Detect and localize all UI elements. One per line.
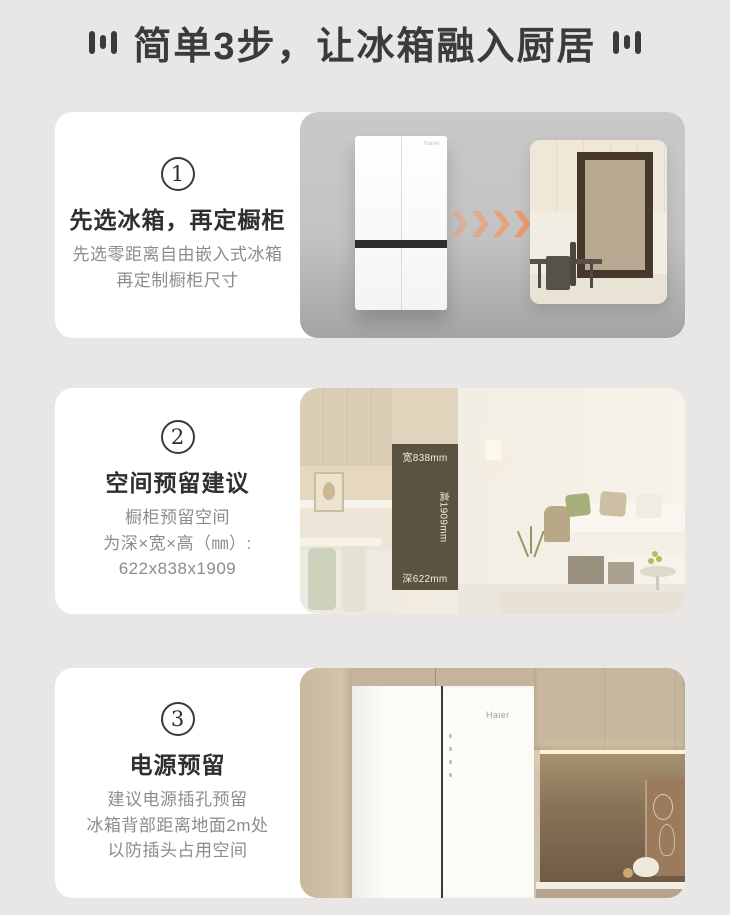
step2-title: 空间预留建议 [106,464,250,498]
arrow-chevron-icon [472,211,489,237]
fridge-door-seam [401,136,402,310]
page-title: 简单3步，让冰箱融入厨居 [133,15,596,70]
table-leg [538,264,541,288]
arrow-chevron-icon [451,211,468,237]
cabinet-above-niche [392,388,458,446]
step2-number-badge: 2 [161,420,195,454]
pillow-white [636,494,662,518]
kitchen-upper-cabinets [300,388,395,466]
header-ticks-right-icon [613,31,641,54]
step3-desc-line: 冰箱背部距离地面2m处 [86,813,268,839]
coffee-table-small [608,562,634,584]
dining-chair [342,546,366,612]
fridge-left-door [352,686,441,898]
height-dimension-label: 高1909mm [438,491,453,542]
lit-display-niche [540,754,685,882]
wall-sconce-light [486,440,501,460]
step3-number-badge: 3 [161,702,195,736]
fridge-control-panel [449,734,452,777]
vase [633,857,659,877]
fruit [656,556,662,562]
gold-ornament [623,868,633,878]
base-cabinet [536,889,685,898]
step3-title: 电源预留 [130,746,226,780]
pillow-tan [599,491,627,517]
cabinet-niche-inner [585,160,645,270]
fruit [648,558,654,564]
brand-logo: Haier [486,710,510,720]
plant-stem [530,526,532,554]
reserved-space-box: 宽838mm 高1909mm 深622mm [392,444,458,590]
dining-chair-back [570,242,576,286]
right-upper-cabinets [534,668,685,750]
art-leaf [323,482,335,500]
table-leg [590,264,593,288]
step1-photo-panel: Haier [300,112,685,338]
step1-title: 先选冰箱，再定橱柜 [70,201,286,235]
step-card-1: 1 先选冰箱，再定橱柜 先选零距离自由嵌入式冰箱 再定制橱柜尺寸 Haier [55,112,685,338]
coffee-table [568,556,604,584]
left-cabinet-column [300,668,352,898]
dining-chair [546,256,570,290]
rug [500,592,685,614]
cabinet-photo [530,140,667,304]
step1-desc-line: 再定制橱柜尺寸 [116,268,239,294]
pillow-green [565,493,591,517]
step1-number-badge: 1 [161,157,195,191]
niche-counter [536,882,685,889]
step2-desc-line: 622x838x1909 [119,556,237,582]
dining-chair [308,548,336,610]
built-in-fridge: Haier [352,686,534,898]
step1-desc-line: 先选零距离自由嵌入式冰箱 [73,242,283,268]
step2-photo-panel: 宽838mm 高1909mm 深622mm [300,388,685,614]
step3-photo-panel: Haier [300,668,685,898]
step3-desc-line: 以防插头占用空间 [108,838,248,864]
arrow-chevron-icon [514,211,531,237]
step3-desc-line: 建议电源插孔预留 [108,787,248,813]
sofa-seat [552,532,685,554]
dining-table [300,538,382,546]
transition-arrows [451,211,531,237]
fruit [652,551,658,557]
fridge-illustration: Haier [355,136,447,310]
step2-desc-line: 为深×宽×高（㎜）: [103,531,252,557]
fridge-door-seam [441,686,443,898]
step3-text: 3 电源预留 建议电源插孔预留 冰箱背部距离地面2m处 以防插头占用空间 [55,668,300,898]
header-ticks-left-icon [89,31,117,54]
section-header: 简单3步，让冰箱融入厨居 [0,16,730,68]
page: 简单3步，让冰箱融入厨居 1 先选冰箱，再定橱柜 先选零距离自由嵌入式冰箱 再定… [0,0,730,915]
line-art [659,824,675,856]
wall-art-frame [314,472,344,512]
width-dimension-label: 宽838mm [392,449,458,464]
side-table-leg [656,576,659,590]
step-card-2: 2 空间预留建议 橱柜预留空间 为深×宽×高（㎜）: 622x838x1909 … [55,388,685,614]
step2-text: 2 空间预留建议 橱柜预留空间 为深×宽×高（㎜）: 622x838x1909 [55,388,300,614]
step-card-3: 3 电源预留 建议电源插孔预留 冰箱背部距离地面2m处 以防插头占用空间 Hai… [55,668,685,898]
brand-logo: Haier [424,141,440,147]
step1-text: 1 先选冰箱，再定橱柜 先选零距离自由嵌入式冰箱 再定制橱柜尺寸 [55,112,300,338]
step2-desc-line: 橱柜预留空间 [125,505,230,531]
fridge-handle-band [355,240,447,248]
line-art [653,794,673,820]
depth-dimension-label: 深622mm [392,570,458,585]
arrow-chevron-icon [493,211,510,237]
